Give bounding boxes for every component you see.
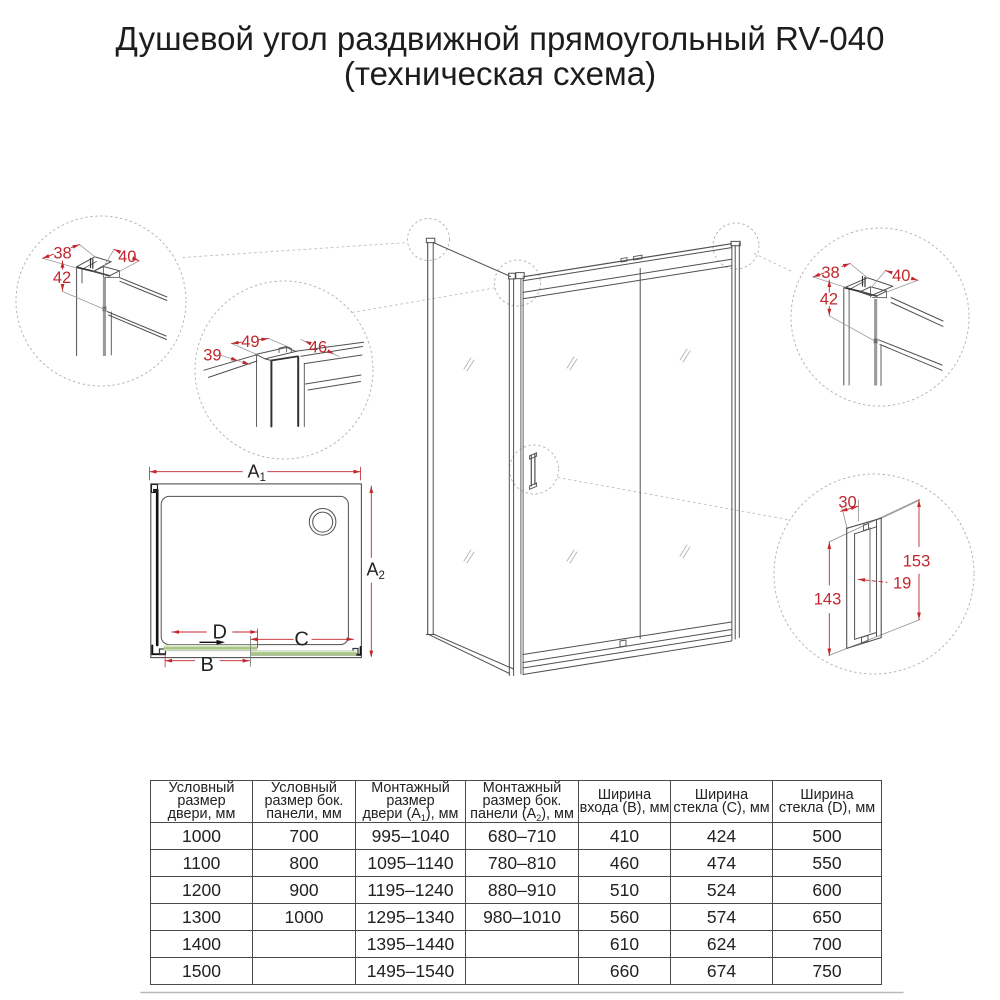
svg-text:A2: A2	[367, 560, 385, 583]
svg-text:A1: A1	[248, 462, 266, 485]
svg-text:46: 46	[309, 339, 327, 357]
svg-text:40: 40	[118, 248, 136, 266]
svg-text:B: B	[201, 654, 214, 676]
svg-text:143: 143	[814, 591, 842, 609]
svg-text:153: 153	[903, 553, 931, 571]
svg-text:38: 38	[821, 264, 839, 282]
svg-text:D: D	[212, 622, 226, 644]
svg-text:C: C	[294, 628, 308, 650]
svg-text:39: 39	[203, 347, 221, 365]
svg-text:49: 49	[241, 333, 259, 351]
svg-text:42: 42	[53, 269, 71, 287]
svg-text:40: 40	[892, 267, 910, 285]
svg-text:19: 19	[893, 575, 911, 593]
svg-text:42: 42	[820, 290, 838, 308]
svg-text:38: 38	[53, 245, 71, 263]
svg-text:30: 30	[838, 493, 856, 511]
